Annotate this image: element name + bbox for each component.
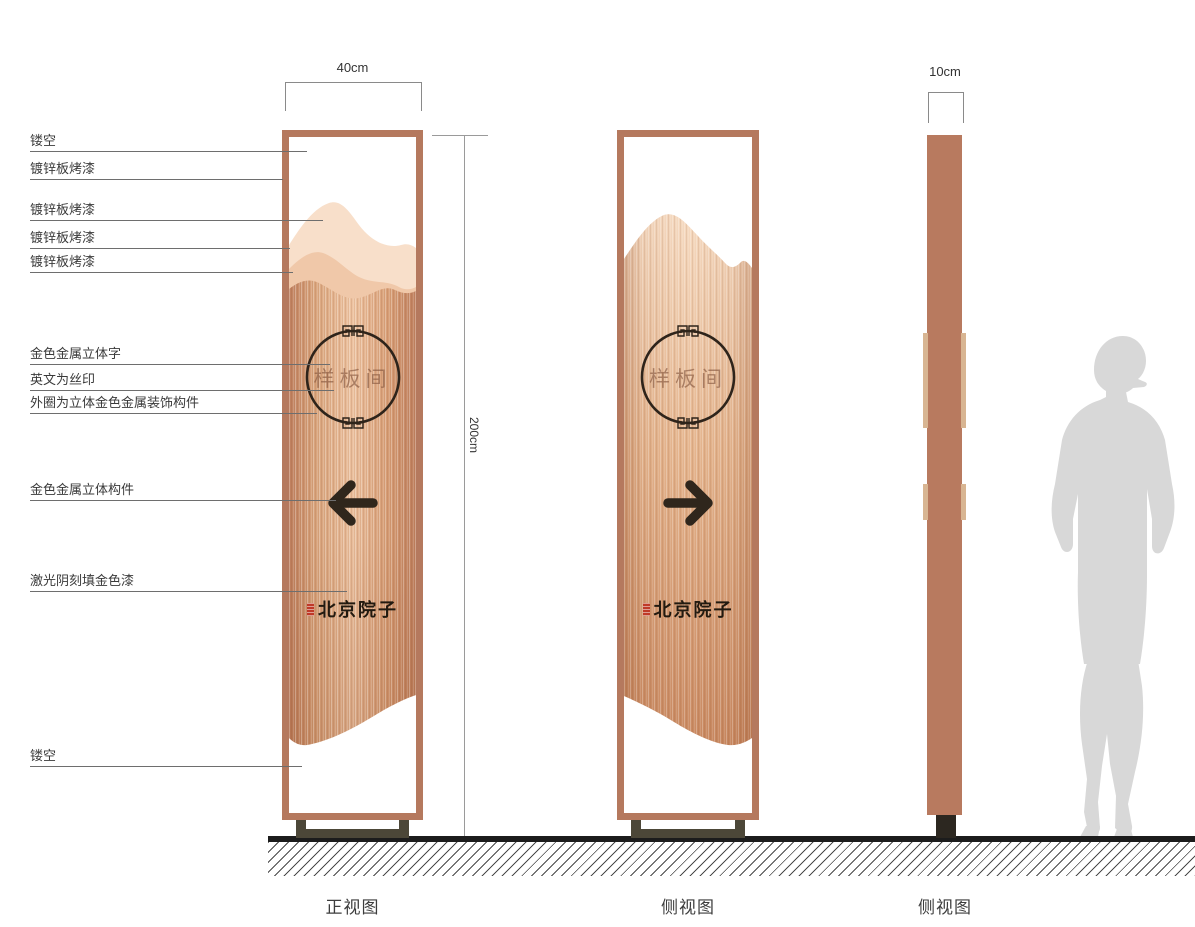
front-base-bar	[296, 829, 409, 838]
annotation-silkscreen: 英文为丝印	[30, 373, 334, 391]
annotation-galvanized-3: 镀锌板烤漆	[30, 231, 290, 249]
annotation-hollow-top: 镂空	[30, 134, 307, 152]
dim-height-tick	[432, 135, 488, 136]
brand-calligraphy: 北京院子	[289, 596, 416, 622]
signage-design-sheet: 镂空 镀锌板烤漆 镀锌板烤漆 镀锌板烤漆 镀锌板烤漆 金色金属立体字 英文为丝印…	[0, 0, 1195, 927]
side-protrusion-arrow-left	[923, 484, 928, 520]
human-scale-silhouette	[1030, 334, 1180, 839]
annotation-galvanized-1: 镀锌板烤漆	[30, 162, 283, 180]
silhouette-torso	[1052, 392, 1175, 664]
annotation-galvanized-4: 镀锌板烤漆	[30, 255, 293, 273]
dim-side-width: 10cm	[928, 64, 962, 79]
brand-calligraphy: 北京院子	[624, 596, 752, 622]
side-panel-art	[624, 137, 752, 813]
side-profile-foot	[936, 815, 956, 838]
dim-height: 200cm	[467, 417, 481, 453]
annotation-galvanized-2: 镀锌板烤漆	[30, 203, 323, 221]
seal-stamp-icon	[307, 603, 314, 616]
caption-side-view-2: 侧视图	[870, 893, 1020, 918]
annotation-outer-ring: 外圈为立体金色金属装饰构件	[30, 396, 317, 414]
front-panel-art	[289, 137, 416, 813]
silhouette-legs	[1080, 660, 1143, 835]
ground-hatch	[268, 836, 1195, 876]
side-view-sign: 样板间 北京院子	[617, 130, 759, 820]
front-view-sign: 样板间 北京院子	[282, 130, 423, 820]
side-protrusion-circle-left	[923, 333, 928, 428]
annotation-gold-letters: 金色金属立体字	[30, 347, 330, 365]
annotation-gold-component: 金色金属立体构件	[30, 483, 336, 501]
annotation-laser-engraving: 激光阴刻填金色漆	[30, 574, 347, 592]
dim-side-width-bracket	[928, 92, 964, 123]
side-base-bar	[631, 829, 745, 838]
seal-stamp-icon	[643, 603, 650, 616]
dim-front-width-bracket	[285, 82, 422, 111]
side-protrusion-arrow-right	[961, 484, 966, 520]
caption-front-view: 正视图	[282, 893, 423, 918]
caption-side-view-1: 侧视图	[617, 893, 759, 918]
side-profile-bar	[927, 135, 962, 815]
silhouette-head	[1094, 336, 1147, 397]
annotation-hollow-bottom: 镂空	[30, 749, 302, 767]
side-protrusion-circle-right	[961, 333, 966, 428]
dim-height-line	[464, 135, 465, 836]
room-name-text: 样板间	[624, 363, 752, 393]
dim-front-width: 40cm	[285, 60, 420, 75]
